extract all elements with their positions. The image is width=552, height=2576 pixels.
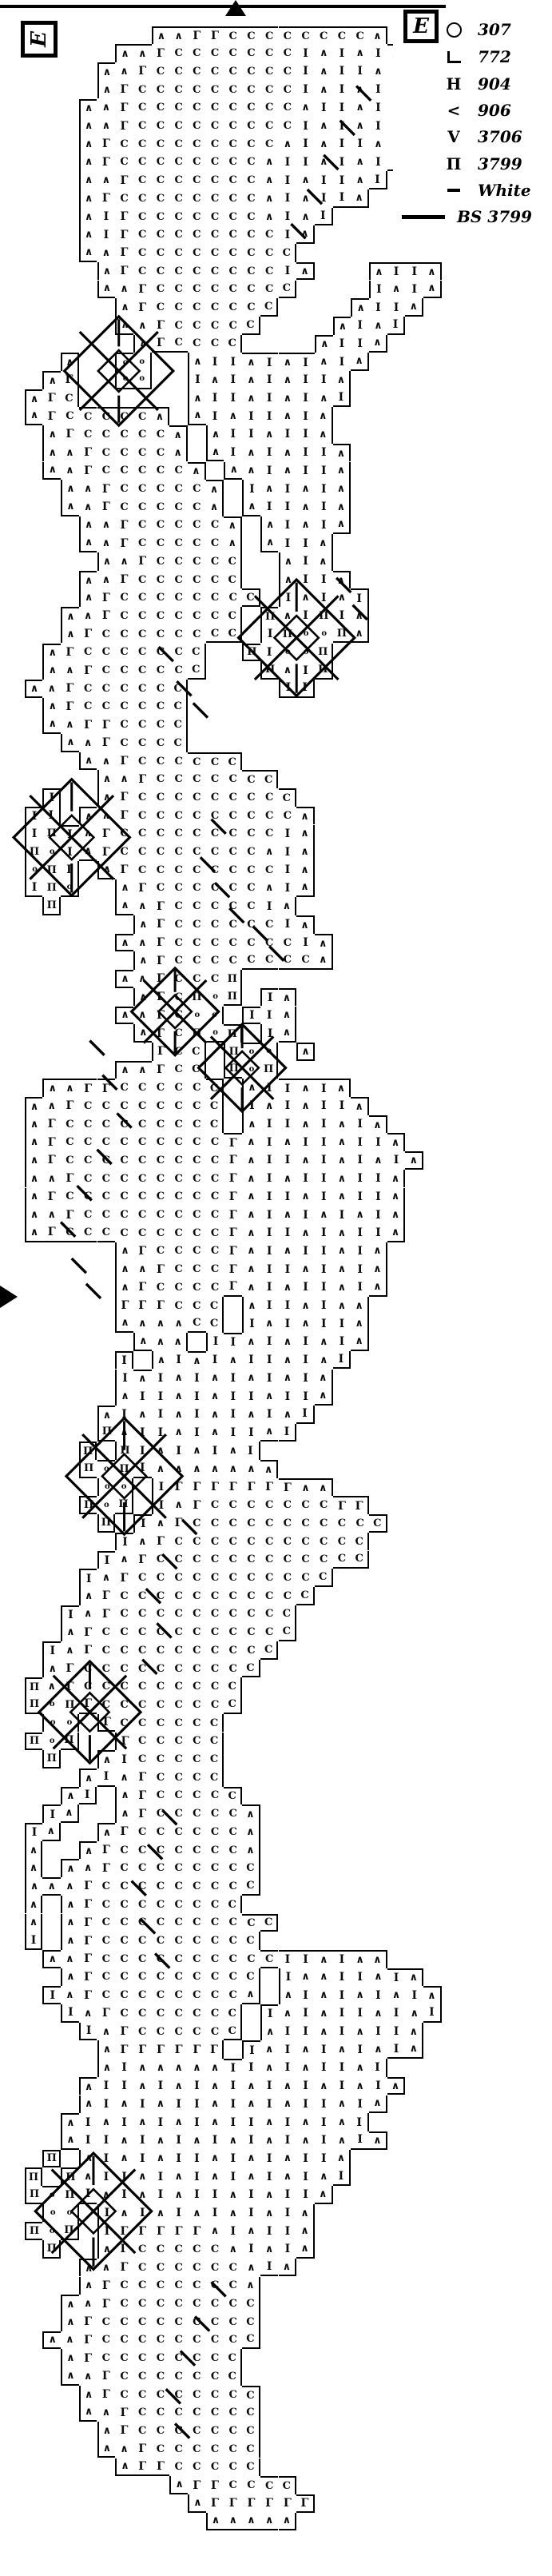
stitch-cell: Γ bbox=[115, 2023, 133, 2041]
stitch-cell: C bbox=[152, 807, 170, 825]
stitch-cell: ∧ bbox=[188, 407, 206, 425]
stitch-cell: ∧ bbox=[115, 2204, 133, 2223]
stitch-cell: C bbox=[188, 843, 206, 861]
stitch-cell: Γ bbox=[279, 2494, 297, 2513]
stitch-cell: I bbox=[296, 661, 315, 680]
stitch-cell: C bbox=[188, 534, 206, 552]
stitch-cell: C bbox=[260, 951, 279, 970]
stitch-cell: C bbox=[169, 81, 188, 99]
stitch-cell: ∧ bbox=[79, 534, 97, 552]
stitch-cell: C bbox=[152, 680, 170, 698]
stitch-cell: ∧ bbox=[260, 154, 279, 172]
stitch-cell: ∧ bbox=[333, 1260, 351, 1278]
stitch-cell: C bbox=[188, 117, 206, 135]
stitch-cell: I bbox=[315, 1242, 333, 1261]
stitch-cell: ∧ bbox=[152, 1314, 170, 1333]
stitch-cell: ∧ bbox=[333, 444, 351, 462]
stitch-cell: ∧ bbox=[279, 1406, 297, 1424]
stitch-cell: ∧ bbox=[279, 2095, 297, 2114]
stitch-cell: C bbox=[115, 1896, 133, 1914]
stitch-cell: C bbox=[188, 1896, 206, 1914]
stitch-cell: ∧ bbox=[79, 171, 97, 189]
stitch-cell: ∧ bbox=[351, 1986, 369, 2004]
stitch-cell: C bbox=[188, 1224, 206, 1242]
stitch-cell: ∧ bbox=[42, 1170, 61, 1188]
stitch-cell: C bbox=[224, 770, 242, 788]
stitch-cell: C bbox=[206, 1787, 224, 1805]
stitch-cell: C bbox=[152, 171, 170, 189]
stitch-cell: C bbox=[152, 425, 170, 444]
stitch-cell: C bbox=[188, 2458, 206, 2477]
stitch-cell: C bbox=[224, 2313, 242, 2331]
stitch-cell: I bbox=[333, 2077, 351, 2095]
stitch-cell: ∧ bbox=[206, 2222, 224, 2240]
stitch-cell: ∧ bbox=[369, 1260, 387, 1278]
stitch-cell: I bbox=[224, 2150, 242, 2168]
stitch-cell: C bbox=[152, 825, 170, 843]
stitch-cell: Π bbox=[97, 1514, 116, 1533]
stitch-cell: C bbox=[224, 1877, 242, 1896]
stitch-cell: C bbox=[206, 1950, 224, 1968]
stitch-cell: I bbox=[369, 154, 387, 172]
stitch-cell: I bbox=[279, 915, 297, 934]
stitch-cell: C bbox=[188, 1660, 206, 1678]
stitch-cell: C bbox=[188, 171, 206, 189]
stitch-cell: I bbox=[279, 1151, 297, 1170]
stitch-cell: I bbox=[206, 1351, 224, 1370]
stitch-cell: ∧ bbox=[279, 2259, 297, 2277]
stitch-cell: I bbox=[296, 1133, 315, 1151]
stitch-cell: C bbox=[188, 1297, 206, 1315]
stitch-cell: C bbox=[224, 1841, 242, 1860]
stitch-cell: ∧ bbox=[79, 752, 97, 771]
stitch-cell: Γ bbox=[97, 189, 116, 208]
stitch-cell: ∧ bbox=[296, 1314, 315, 1333]
stitch-cell: I bbox=[296, 353, 315, 371]
stitch-cell: ∧ bbox=[42, 2331, 61, 2350]
stitch-cell: Γ bbox=[188, 1496, 206, 1514]
stitch-cell: C bbox=[242, 1514, 260, 1533]
stitch-cell: ∧ bbox=[260, 843, 279, 861]
stitch-cell: C bbox=[115, 462, 133, 481]
stitch-cell: Γ bbox=[79, 1623, 97, 1641]
stitch-cell: Γ bbox=[61, 371, 79, 389]
stitch-cell: C bbox=[152, 281, 170, 299]
stitch-cell: ∧ bbox=[224, 516, 242, 535]
stitch-cell: C bbox=[152, 770, 170, 788]
stitch-cell: ∧ bbox=[242, 1133, 260, 1151]
stitch-cell: C bbox=[169, 2295, 188, 2313]
stitch-cell: C bbox=[279, 281, 297, 299]
stitch-cell: C bbox=[188, 1932, 206, 1950]
stitch-cell: ∧ bbox=[97, 2422, 116, 2440]
stitch-cell: I bbox=[133, 1514, 152, 1533]
stitch-cell: C bbox=[260, 281, 279, 299]
stitch-cell: C bbox=[115, 734, 133, 752]
stitch-cell: C bbox=[115, 2004, 133, 2023]
stitch-cell: Γ bbox=[79, 1696, 97, 1714]
stitch-cell: C bbox=[97, 1115, 116, 1134]
stitch-cell: I bbox=[169, 2150, 188, 2168]
stitch-cell: ∧ bbox=[296, 262, 315, 281]
stitch-cell: Γ bbox=[133, 281, 152, 299]
stitch-cell: C bbox=[152, 189, 170, 208]
stitch-cell: C bbox=[133, 2422, 152, 2440]
stitch-cell: Π bbox=[242, 644, 260, 662]
stitch-cell: C bbox=[169, 1224, 188, 1242]
stitch-cell: C bbox=[169, 516, 188, 535]
stitch-cell: ∧ bbox=[79, 2095, 97, 2114]
stitch-cell: Γ bbox=[133, 1787, 152, 1805]
stitch-cell: C bbox=[133, 734, 152, 752]
stitch-cell: ∧ bbox=[279, 1333, 297, 1351]
stitch-cell: C bbox=[79, 1188, 97, 1206]
stitch-cell: C bbox=[152, 62, 170, 81]
stitch-cell: C bbox=[115, 1133, 133, 1151]
stitch-cell: ∧ bbox=[97, 571, 116, 589]
stitch-cell: C bbox=[133, 480, 152, 498]
stitch-cell: Π bbox=[333, 625, 351, 644]
stitch-cell: C bbox=[79, 1133, 97, 1151]
stitch-cell: I bbox=[279, 825, 297, 843]
legend-panel: E 307772H904<906V3706Π3799WhiteBS 3799 bbox=[393, 0, 552, 241]
stitch-cell: C bbox=[206, 752, 224, 771]
stitch-cell: C bbox=[188, 1914, 206, 1932]
stitch-cell: I bbox=[387, 298, 406, 317]
stitch-cell: I bbox=[188, 1370, 206, 1388]
stitch-cell: C bbox=[260, 1605, 279, 1624]
stitch-cell: C bbox=[242, 26, 260, 45]
stitch-cell: I bbox=[351, 135, 369, 154]
legend-symbol-pi: Π bbox=[439, 154, 468, 173]
stitch-cell: I bbox=[333, 81, 351, 99]
legend-code: BS 3799 bbox=[457, 207, 532, 226]
stitch-cell: C bbox=[152, 498, 170, 516]
stitch-cell: Γ bbox=[61, 644, 79, 662]
stitch-cell: o bbox=[188, 1007, 206, 1025]
stitch-cell: ∧ bbox=[115, 934, 133, 952]
stitch-cell: C bbox=[260, 770, 279, 788]
legend-entry: White bbox=[439, 178, 531, 202]
stitch-cell: C bbox=[224, 2476, 242, 2494]
stitch-cell: I bbox=[260, 2004, 279, 2023]
stitch-cell: C bbox=[97, 1641, 116, 1660]
stitch-cell: C bbox=[152, 752, 170, 771]
stitch-cell: ∧ bbox=[79, 208, 97, 226]
stitch-cell: I bbox=[260, 2095, 279, 2114]
stitch-cell: C bbox=[188, 1151, 206, 1170]
stitch-cell: C bbox=[169, 1714, 188, 1733]
stitch-cell: C bbox=[133, 1877, 152, 1896]
stitch-cell: ∧ bbox=[97, 552, 116, 571]
stitch-cell: C bbox=[97, 1877, 116, 1896]
stitch-cell: ∧ bbox=[242, 462, 260, 481]
stitch-cell: C bbox=[133, 1823, 152, 1841]
stitch-cell: C bbox=[133, 1097, 152, 1115]
stitch-cell: I bbox=[260, 1406, 279, 1424]
stitch-cell: ∧ bbox=[242, 1823, 260, 1841]
stitch-cell: C bbox=[152, 154, 170, 172]
stitch-cell: C bbox=[169, 752, 188, 771]
stitch-cell: C bbox=[351, 1514, 369, 1533]
stitch-cell: C bbox=[224, 189, 242, 208]
stitch-cell: Γ bbox=[169, 2040, 188, 2059]
stitch-cell: C bbox=[133, 534, 152, 552]
stitch-cell: ∧ bbox=[97, 99, 116, 118]
stitch-cell: C bbox=[188, 1986, 206, 2004]
stitch-cell: ∧ bbox=[61, 1914, 79, 1932]
stitch-cell: o bbox=[242, 1043, 260, 1061]
stitch-cell: C bbox=[152, 2295, 170, 2313]
stitch-cell: ∧ bbox=[333, 1170, 351, 1188]
stitch-cell: I bbox=[279, 1115, 297, 1134]
stitch-cell: ∧ bbox=[296, 1188, 315, 1206]
stitch-cell: ∧ bbox=[242, 1206, 260, 1224]
stitch-cell: C bbox=[206, 2277, 224, 2295]
stitch-cell: C bbox=[115, 1914, 133, 1932]
stitch-cell: ∧ bbox=[242, 1079, 260, 1097]
stitch-cell: I bbox=[115, 1370, 133, 1388]
stitch-cell: ∧ bbox=[423, 262, 442, 281]
stitch-cell: I bbox=[260, 2222, 279, 2240]
stitch-cell: ∧ bbox=[115, 2131, 133, 2150]
stitch-cell: C bbox=[133, 444, 152, 462]
stitch-cell: ∧ bbox=[279, 571, 297, 589]
stitch-cell: C bbox=[188, 2422, 206, 2440]
stitch-cell: C bbox=[115, 407, 133, 425]
stitch-cell: I bbox=[296, 154, 315, 172]
stitch-cell: C bbox=[206, 2023, 224, 2041]
stitch-cell: o bbox=[42, 843, 61, 861]
stitch-cell: I bbox=[169, 2131, 188, 2150]
stitch-cell: C bbox=[133, 2259, 152, 2277]
stitch-cell: C bbox=[188, 644, 206, 662]
stitch-cell: I bbox=[315, 1151, 333, 1170]
stitch-cell: ∧ bbox=[279, 371, 297, 389]
stitch-cell: C bbox=[169, 1823, 188, 1841]
stitch-cell: I bbox=[242, 407, 260, 425]
stitch-cell: C bbox=[242, 2295, 260, 2313]
stitch-cell: ∧ bbox=[279, 2077, 297, 2095]
stitch-cell: ∧ bbox=[79, 480, 97, 498]
stitch-cell: C bbox=[206, 117, 224, 135]
stitch-cell: I bbox=[296, 2004, 315, 2023]
stitch-cell: ∧ bbox=[315, 1986, 333, 2004]
stitch-cell: C bbox=[188, 970, 206, 988]
stitch-cell: I bbox=[25, 879, 43, 898]
stitch-cell: ∧ bbox=[351, 607, 369, 625]
stitch-cell: ∧ bbox=[188, 2204, 206, 2223]
stitch-cell: I bbox=[423, 2004, 442, 2023]
stitch-cell: C bbox=[133, 154, 152, 172]
stitch-cell: o bbox=[25, 861, 43, 879]
stitch-cell: ∧ bbox=[206, 425, 224, 444]
stitch-cell: C bbox=[188, 2440, 206, 2458]
stitch-cell: C bbox=[152, 1896, 170, 1914]
stitch-cell: C bbox=[242, 99, 260, 118]
stitch-cell: I bbox=[188, 1406, 206, 1424]
stitch-cell: ∧ bbox=[42, 644, 61, 662]
stitch-cell: C bbox=[152, 1133, 170, 1151]
stitch-cell: I bbox=[387, 2004, 406, 2023]
stitch-cell: ∧ bbox=[206, 1406, 224, 1424]
stitch-cell: ∧ bbox=[260, 2040, 279, 2059]
stitch-cell: I bbox=[333, 1950, 351, 1968]
stitch-cell: C bbox=[206, 2295, 224, 2313]
stitch-cell: ∧ bbox=[224, 407, 242, 425]
stitch-cell: I bbox=[242, 2113, 260, 2131]
stitch-cell: C bbox=[61, 389, 79, 408]
stitch-cell: I bbox=[296, 1333, 315, 1351]
stitch-cell: C bbox=[242, 934, 260, 952]
stitch-cell: ∧ bbox=[296, 1968, 315, 1987]
stitch-cell: Γ bbox=[42, 1133, 61, 1151]
stitch-cell: C bbox=[152, 1605, 170, 1624]
stitch-cell: ∧ bbox=[169, 1370, 188, 1388]
stitch-cell: C bbox=[115, 1079, 133, 1097]
stitch-cell: C bbox=[206, 843, 224, 861]
stitch-cell: ∧ bbox=[61, 716, 79, 734]
stitch-cell: C bbox=[188, 951, 206, 970]
stitch-cell: ∧ bbox=[115, 2440, 133, 2458]
stitch-cell: I bbox=[369, 171, 387, 189]
stitch-cell: I bbox=[315, 1079, 333, 1097]
stitch-cell: C bbox=[188, 44, 206, 62]
stitch-cell: I bbox=[79, 1787, 97, 1805]
stitch-cell: Γ bbox=[115, 861, 133, 879]
stitch-cell: C bbox=[260, 262, 279, 281]
stitch-cell: C bbox=[242, 1950, 260, 1968]
stitch-cell: Γ bbox=[115, 99, 133, 118]
stitch-cell: ∧ bbox=[242, 444, 260, 462]
stitch-cell: ∧ bbox=[61, 661, 79, 680]
stitch-cell: C bbox=[242, 2440, 260, 2458]
stitch-cell: C bbox=[242, 788, 260, 807]
stitch-cell: I bbox=[61, 861, 79, 879]
stitch-cell: C bbox=[97, 1188, 116, 1206]
stitch-cell: C bbox=[97, 462, 116, 481]
stitch-cell: Π bbox=[97, 1424, 116, 1442]
stitch-cell: Π bbox=[61, 2186, 79, 2204]
stitch-cell: ∧ bbox=[242, 2222, 260, 2240]
stitch-cell: C bbox=[206, 861, 224, 879]
legend-symbol-v: V bbox=[439, 127, 468, 146]
stitch-cell: C bbox=[206, 335, 224, 353]
stitch-cell: C bbox=[206, 1914, 224, 1932]
stitch-cell: C bbox=[169, 2403, 188, 2422]
stitch-cell: I bbox=[315, 1188, 333, 1206]
stitch-cell: ∧ bbox=[61, 1950, 79, 1968]
stitch-cell: C bbox=[279, 1514, 297, 1533]
stitch-cell: C bbox=[296, 951, 315, 970]
stitch-cell: C bbox=[296, 1533, 315, 1551]
stitch-cell: Γ bbox=[61, 1660, 79, 1678]
stitch-cell: o bbox=[42, 2204, 61, 2223]
stitch-cell: ∧ bbox=[25, 1188, 43, 1206]
stitch-cell: C bbox=[79, 1677, 97, 1696]
stitch-cell: ∧ bbox=[315, 552, 333, 571]
stitch-cell: C bbox=[61, 1224, 79, 1242]
stitch-cell: Γ bbox=[133, 1551, 152, 1569]
stitch-cell: ∧ bbox=[152, 26, 170, 45]
stitch-cell: I bbox=[296, 44, 315, 62]
stitch-cell: ∧ bbox=[133, 1024, 152, 1043]
stitch-cell: I bbox=[296, 934, 315, 952]
stitch-cell: Γ bbox=[152, 317, 170, 335]
stitch-cell: C bbox=[169, 44, 188, 62]
stitch-cell: Γ bbox=[79, 2313, 97, 2331]
stitch-cell: C bbox=[206, 2313, 224, 2331]
stitch-cell: I bbox=[188, 2186, 206, 2204]
stitch-cell: C bbox=[242, 843, 260, 861]
stitch-cell: o bbox=[61, 879, 79, 898]
stitch-cell: I bbox=[242, 2059, 260, 2077]
stitch-cell: ∧ bbox=[97, 752, 116, 771]
stitch-cell: ∧ bbox=[242, 2277, 260, 2295]
stitch-cell: Π bbox=[25, 2222, 43, 2240]
stitch-cell: Γ bbox=[242, 1478, 260, 1497]
stitch-cell: Γ bbox=[115, 807, 133, 825]
stitch-cell: C bbox=[115, 1841, 133, 1860]
stitch-cell: C bbox=[152, 571, 170, 589]
stitch-cell: C bbox=[97, 680, 116, 698]
stitch-cell: C bbox=[224, 752, 242, 771]
stitch-cell: ∧ bbox=[206, 1370, 224, 1388]
stitch-cell: ∧ bbox=[42, 371, 61, 389]
stitch-cell: C bbox=[279, 1496, 297, 1514]
stitch-cell: C bbox=[224, 1587, 242, 1605]
stitch-cell: Γ bbox=[61, 1206, 79, 1224]
stitch-cell: C bbox=[79, 1170, 97, 1188]
stitch-cell: Γ bbox=[79, 444, 97, 462]
stitch-cell: C bbox=[169, 2240, 188, 2259]
stitch-cell: C bbox=[333, 1551, 351, 1569]
stitch-cell: C bbox=[133, 2349, 152, 2367]
stitch-cell: C bbox=[188, 1115, 206, 1134]
stitch-cell: I bbox=[115, 2059, 133, 2077]
stitch-cell: I bbox=[169, 1351, 188, 1370]
stitch-cell: I bbox=[333, 1314, 351, 1333]
stitch-cell: C bbox=[115, 698, 133, 716]
stitch-cell: Γ bbox=[42, 1151, 61, 1170]
stitch-cell: I bbox=[260, 897, 279, 915]
stitch-cell: C bbox=[296, 1514, 315, 1533]
stitch-cell: I bbox=[260, 1297, 279, 1315]
stitch-cell: ∧ bbox=[423, 1986, 442, 2004]
stitch-cell: Γ bbox=[97, 2277, 116, 2295]
stitch-cell: C bbox=[169, 1950, 188, 1968]
stitch-cell: C bbox=[224, 1641, 242, 1660]
stitch-cell: I bbox=[224, 444, 242, 462]
stitch-cell: ∧ bbox=[61, 734, 79, 752]
stitch-cell: C bbox=[115, 1641, 133, 1660]
stitch-cell: I bbox=[315, 189, 333, 208]
stitch-cell: C bbox=[115, 825, 133, 843]
legend-symbol-corner bbox=[439, 51, 468, 63]
stitch-cell: Γ bbox=[97, 734, 116, 752]
stitch-cell: Γ bbox=[115, 208, 133, 226]
stitch-cell: I bbox=[369, 99, 387, 118]
stitch-cell: ∧ bbox=[97, 117, 116, 135]
stitch-cell: ∧ bbox=[351, 353, 369, 371]
stitch-cell: C bbox=[224, 571, 242, 589]
stitch-cell: C bbox=[279, 1623, 297, 1641]
stitch-cell: C bbox=[133, 1115, 152, 1134]
stitch-cell: I bbox=[115, 1533, 133, 1551]
legend-code: 3706 bbox=[478, 127, 522, 146]
stitch-cell: I bbox=[224, 389, 242, 408]
stitch-cell: ∧ bbox=[206, 2167, 224, 2186]
